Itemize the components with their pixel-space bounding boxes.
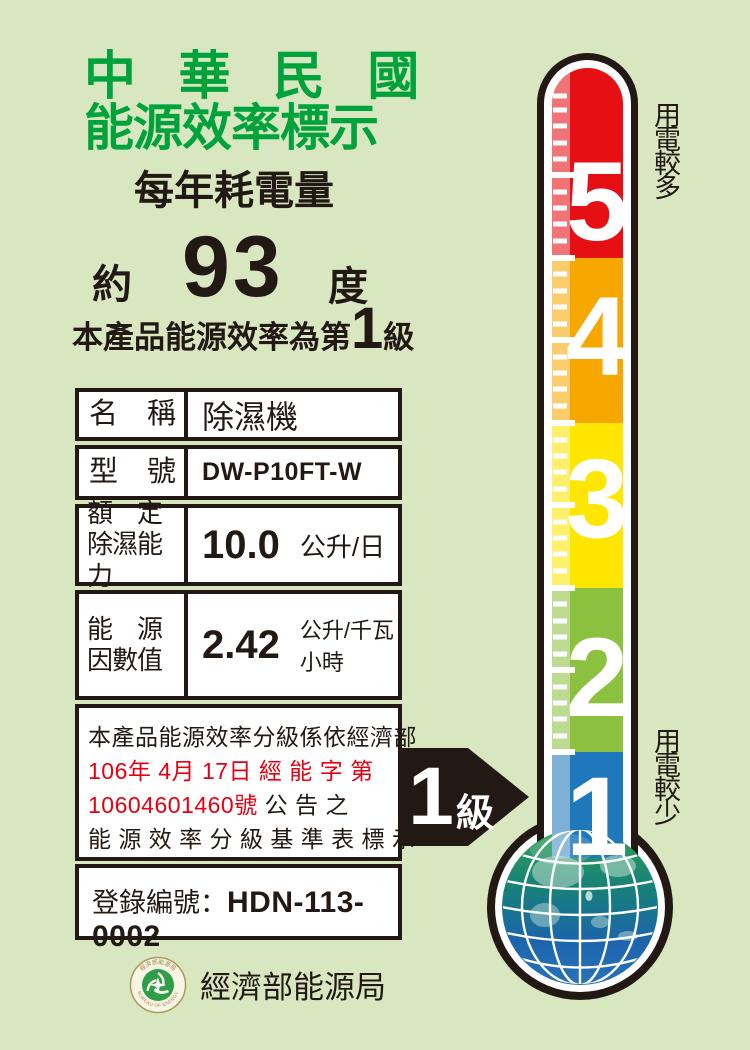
thermometer-graphic: 1 級 5 4 3 2 1 bbox=[0, 0, 750, 1050]
bureau-of-energy-seal: 經濟部能源局 BUREAU OF ENERGY bbox=[131, 958, 186, 1013]
landmass-island bbox=[586, 891, 593, 901]
grade-arrow-badge: 1 級 bbox=[399, 748, 529, 846]
scale-number-2: 2 bbox=[566, 615, 628, 740]
energy-label: 中 華 民 國 能源效率標示 每年耗電量 約 93 度 本產品能源效率為第1級 … bbox=[0, 0, 750, 1050]
badge-grade-suffix: 級 bbox=[456, 793, 494, 835]
badge-grade-number: 1 bbox=[408, 751, 454, 842]
landmass-4 bbox=[591, 916, 609, 928]
scale-number-3: 3 bbox=[566, 436, 628, 561]
scale-number-4: 4 bbox=[566, 274, 628, 399]
scale-number-5: 5 bbox=[566, 139, 628, 264]
